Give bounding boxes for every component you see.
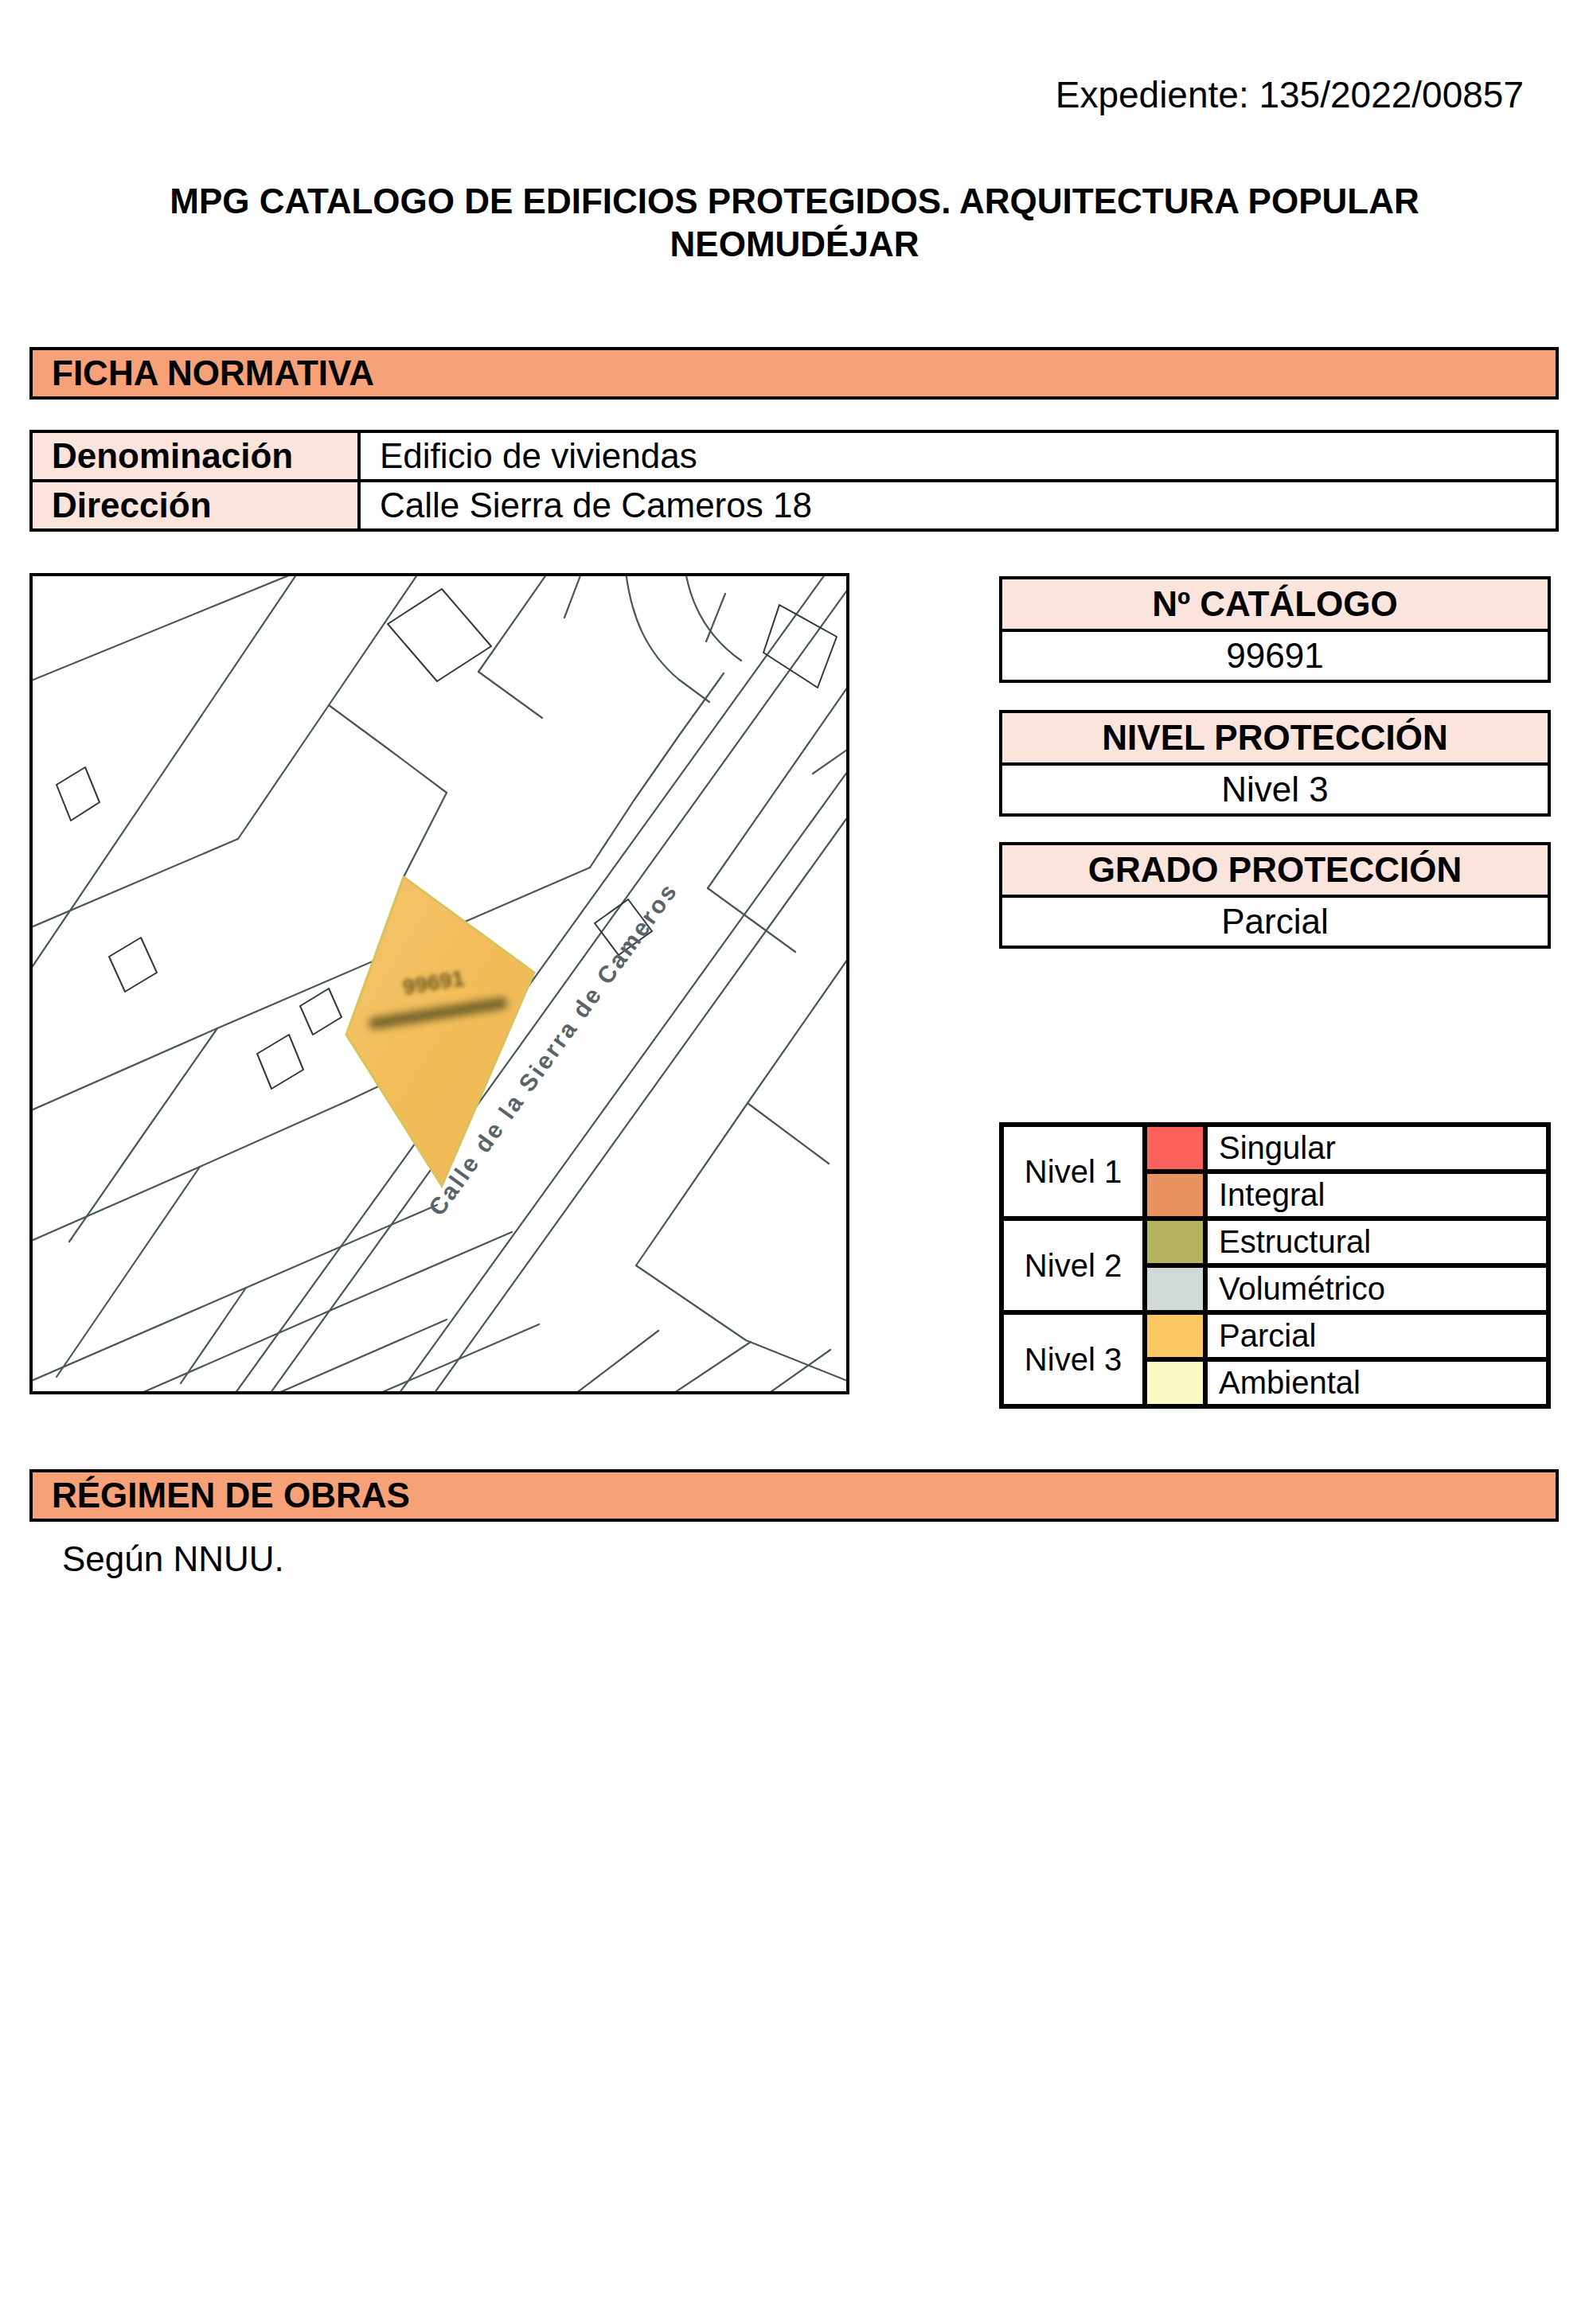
denominacion-label: Denominación	[31, 431, 359, 481]
direccion-label: Dirección	[31, 481, 359, 530]
nivel-proteccion-box: NIVEL PROTECCIÓN Nivel 3	[999, 710, 1551, 817]
protection-legend-table: Nivel 1 Singular Integral Nivel 2 Estruc…	[999, 1122, 1551, 1409]
building-info-table: Denominación Edificio de viviendas Direc…	[29, 430, 1559, 532]
table-row: Denominación Edificio de viviendas	[31, 431, 1557, 481]
legend-level-3-label: Nivel 3	[1001, 1312, 1145, 1406]
regimen-body-text: Según NNUU.	[62, 1539, 284, 1579]
legend-swatch-ambiental	[1145, 1359, 1205, 1406]
denominacion-value: Edificio de viviendas	[359, 431, 1557, 481]
legend-swatch-estructural	[1145, 1219, 1205, 1265]
legend-name-parcial: Parcial	[1205, 1312, 1548, 1359]
catalogo-box: Nº CATÁLOGO 99691	[999, 576, 1551, 683]
legend-swatch-singular	[1145, 1125, 1205, 1172]
table-row: Dirección Calle Sierra de Cameros 18	[31, 481, 1557, 530]
legend-level-2-label: Nivel 2	[1001, 1219, 1145, 1312]
grado-header: GRADO PROTECCIÓN	[1002, 845, 1548, 898]
nivel-header: NIVEL PROTECCIÓN	[1002, 713, 1548, 766]
nivel-value: Nivel 3	[1002, 766, 1548, 813]
cadastral-map: 99691 Calle de la Sierra de Cameros	[29, 573, 849, 1394]
legend-name-estructural: Estructural	[1205, 1219, 1548, 1265]
direccion-value: Calle Sierra de Cameros 18	[359, 481, 1557, 530]
legend-name-volumetrico: Volumétrico	[1205, 1265, 1548, 1312]
legend-row: Nivel 1 Singular	[1001, 1125, 1548, 1172]
legend-level-1-label: Nivel 1	[1001, 1125, 1145, 1219]
grado-value: Parcial	[1002, 898, 1548, 946]
legend-name-ambiental: Ambiental	[1205, 1359, 1548, 1406]
page-title: MPG CATALOGO DE EDIFICIOS PROTEGIDOS. AR…	[78, 180, 1511, 265]
legend-swatch-volumetrico	[1145, 1265, 1205, 1312]
legend-swatch-parcial	[1145, 1312, 1205, 1359]
page-title-line2: NEOMUDÉJAR	[78, 223, 1511, 266]
legend-name-singular: Singular	[1205, 1125, 1548, 1172]
legend-row: Nivel 3 Parcial	[1001, 1312, 1548, 1359]
ficha-normativa-header: FICHA NORMATIVA	[29, 347, 1559, 400]
grado-proteccion-box: GRADO PROTECCIÓN Parcial	[999, 842, 1551, 949]
document-page: Expediente: 135/2022/00857 MPG CATALOGO …	[0, 0, 1589, 2324]
catalogo-header: Nº CATÁLOGO	[1002, 579, 1548, 632]
cadastral-map-drawing: 99691 Calle de la Sierra de Cameros	[33, 576, 846, 1391]
expediente-number: Expediente: 135/2022/00857	[1056, 73, 1524, 116]
page-title-line1: MPG CATALOGO DE EDIFICIOS PROTEGIDOS. AR…	[78, 180, 1511, 223]
legend-name-integral: Integral	[1205, 1172, 1548, 1219]
regimen-de-obras-header: RÉGIMEN DE OBRAS	[29, 1469, 1559, 1522]
highlighted-parcel: 99691	[346, 877, 534, 1186]
catalogo-value: 99691	[1002, 632, 1548, 680]
legend-swatch-integral	[1145, 1172, 1205, 1219]
legend-row: Nivel 2 Estructural	[1001, 1219, 1548, 1265]
